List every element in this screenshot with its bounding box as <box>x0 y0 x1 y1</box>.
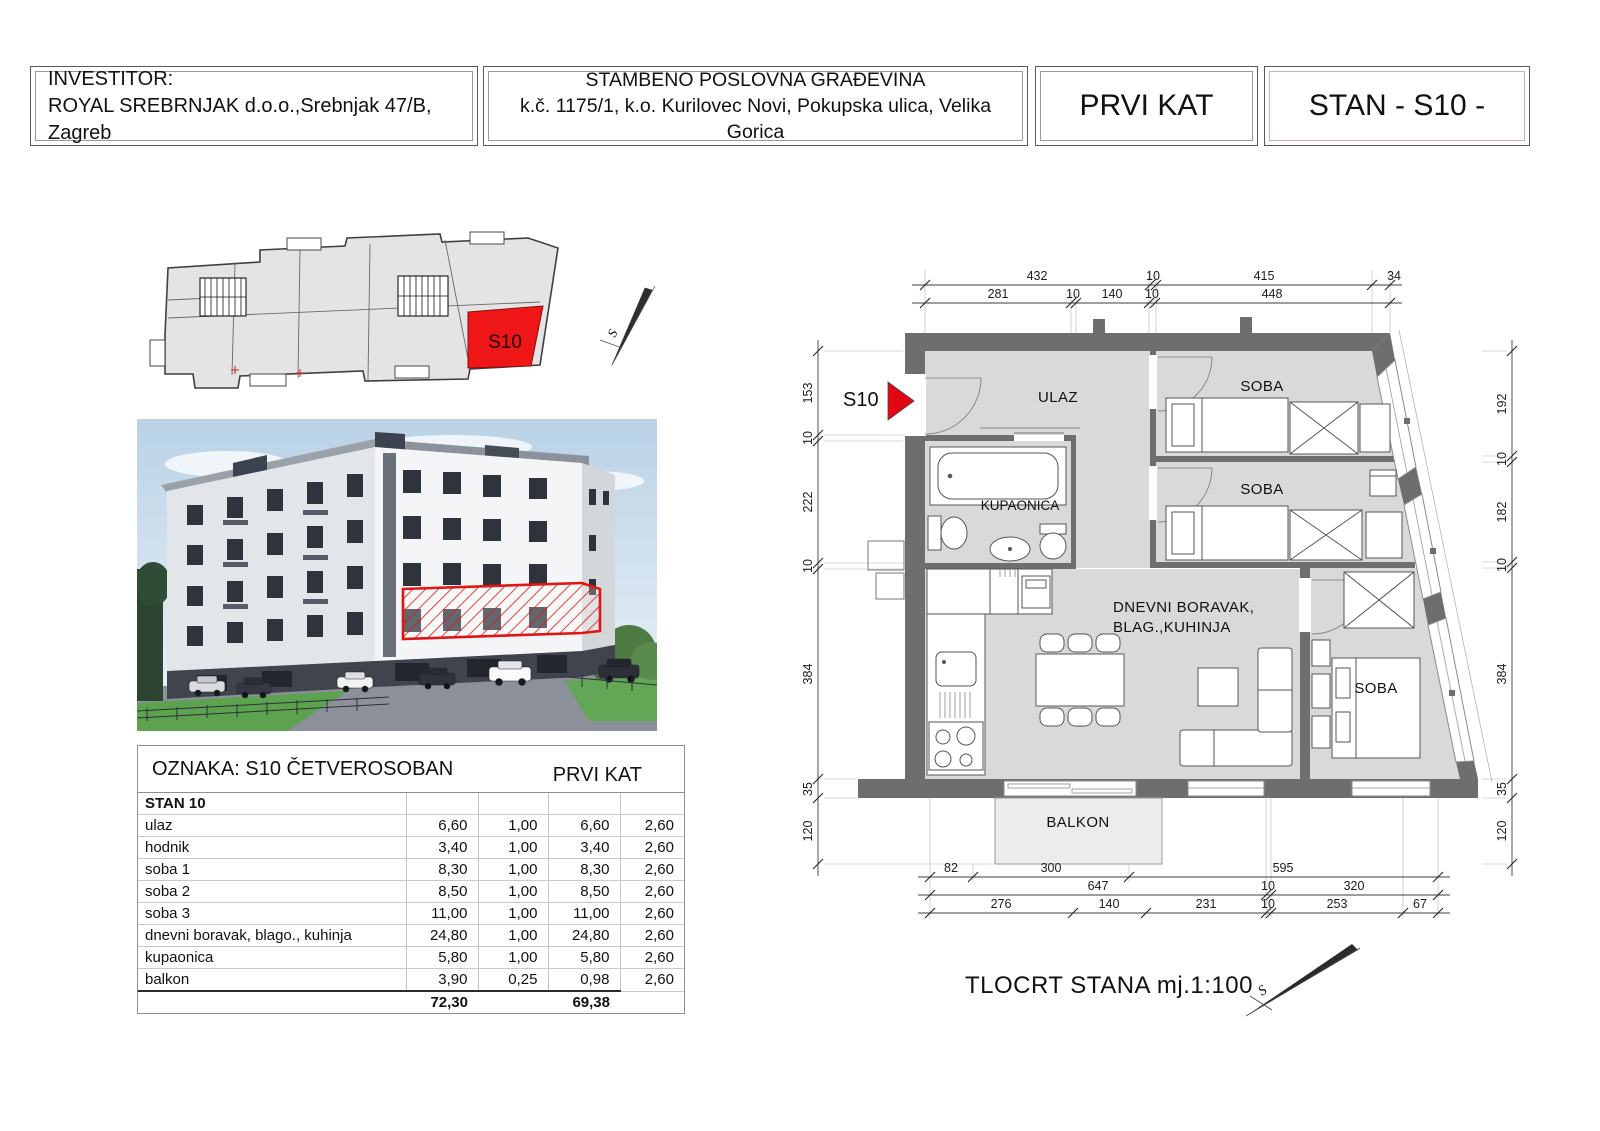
table-row: balkon3,900,250,982,60 <box>138 969 684 992</box>
table-row: soba 28,501,008,502,60 <box>138 881 684 903</box>
table-row: dnevni boravak, blago., kuhinja24,801,00… <box>138 925 684 947</box>
svg-text:10: 10 <box>1066 287 1080 301</box>
toilet2-icon <box>1040 524 1066 559</box>
sink-icon <box>990 537 1030 561</box>
svg-text:231: 231 <box>1196 897 1217 911</box>
plan-sheet: INVESTITOR: ROYAL SREBRNJAK d.o.o.,Srebn… <box>0 0 1600 1131</box>
wardrobe-icon-soba-bottom <box>1344 572 1414 628</box>
svg-text:10: 10 <box>1261 879 1275 893</box>
project-title: STAMBENO POSLOVNA GRAĐEVINA <box>489 67 1022 93</box>
svg-text:10: 10 <box>801 431 815 445</box>
coffee-table-icon <box>1198 668 1238 706</box>
floor-box: PRVI KAT <box>1035 66 1258 146</box>
room-label-soba-top: SOBA <box>1240 378 1283 395</box>
room-label-living-2: BLAG.,KUHINJA <box>1113 619 1231 636</box>
svg-text:10: 10 <box>801 559 815 573</box>
table-row-group: STAN 10 <box>138 793 684 815</box>
svg-text:384: 384 <box>801 664 815 685</box>
svg-text:140: 140 <box>1102 287 1123 301</box>
svg-text:82: 82 <box>944 861 958 875</box>
highlighted-unit-overlay <box>403 583 600 639</box>
north-label: S <box>604 327 621 340</box>
floor-plan: ULAZ SOBA SOBA KUPAONICA DNEVNI BORAVAK,… <box>780 240 1570 1040</box>
bed-icon-soba-top <box>1166 398 1288 452</box>
svg-text:67: 67 <box>1413 897 1427 911</box>
svg-text:595: 595 <box>1273 861 1294 875</box>
table-row: soba 311,001,0011,002,60 <box>138 903 684 925</box>
bathtub-icon <box>930 447 1066 505</box>
svg-text:192: 192 <box>1495 394 1509 415</box>
investor-label: INVESTITOR: <box>48 66 472 93</box>
north-label: S <box>1256 983 1270 999</box>
project-location: k.č. 1175/1, k.o. Kurilovec Novi, Pokups… <box>489 93 1022 145</box>
building <box>161 432 615 699</box>
entrance-marker-label: S10 <box>843 389 879 411</box>
room-label-ulaz: ULAZ <box>1038 389 1078 406</box>
toilet-icon <box>928 516 967 550</box>
unit-label: STAN - S10 - <box>1270 89 1524 123</box>
svg-text:10: 10 <box>1495 452 1509 466</box>
area-table-oznaka: OZNAKA: S10 ČETVEROSOBAN <box>138 758 453 781</box>
area-table-title: OZNAKA: S10 ČETVEROSOBAN PRVI KAT <box>138 746 684 793</box>
room-label-living-1: DNEVNI BORAVAK, <box>1113 599 1254 616</box>
key-plan-unit-s10: S10 <box>468 306 543 368</box>
table-row: soba 18,301,008,302,60 <box>138 859 684 881</box>
entrance-marker: S10 <box>843 382 914 420</box>
dim-right-column: 192 10 182 10 384 35 120 <box>1495 340 1517 876</box>
scale-note: TLOCRT STANA mj.1:100 <box>965 972 1253 1000</box>
svg-text:222: 222 <box>801 492 815 513</box>
area-table-floor: PRVI KAT <box>553 764 642 792</box>
north-arrow-icon: S <box>1246 944 1360 1016</box>
svg-text:120: 120 <box>801 821 815 842</box>
svg-text:320: 320 <box>1344 879 1365 893</box>
svg-text:140: 140 <box>1099 897 1120 911</box>
wardrobe-icon-soba-top <box>1290 402 1390 454</box>
balcony <box>995 798 1162 864</box>
svg-text:182: 182 <box>1495 502 1509 523</box>
unit-box: STAN - S10 - <box>1264 66 1530 146</box>
building-render <box>137 419 657 731</box>
shafts <box>868 541 904 599</box>
svg-text:647: 647 <box>1088 879 1109 893</box>
svg-text:448: 448 <box>1262 287 1283 301</box>
stair-strip <box>383 453 396 657</box>
svg-text:276: 276 <box>991 897 1012 911</box>
key-plan-unit-label: S10 <box>488 332 522 353</box>
bed-icon-soba-bottom <box>1312 640 1420 758</box>
stove-icon <box>929 722 983 770</box>
bed-icon-soba-mid <box>1166 506 1288 560</box>
key-plan: S10 S <box>140 215 700 405</box>
svg-text:35: 35 <box>1495 782 1509 796</box>
svg-text:300: 300 <box>1041 861 1062 875</box>
svg-text:153: 153 <box>801 383 815 404</box>
table-row-total: 72,3069,38 <box>138 991 684 1013</box>
investor-box: INVESTITOR: ROYAL SREBRNJAK d.o.o.,Srebn… <box>30 66 478 146</box>
investor-name: ROYAL SREBRNJAK d.o.o.,Srebnjak 47/B, Za… <box>48 93 472 147</box>
dim-top-row-2: 281 10 140 10 448 <box>912 287 1402 308</box>
svg-text:10: 10 <box>1145 287 1159 301</box>
svg-text:432: 432 <box>1027 269 1048 283</box>
table-row: kupaonica5,801,005,802,60 <box>138 947 684 969</box>
svg-text:415: 415 <box>1254 269 1275 283</box>
floor-label: PRVI KAT <box>1041 89 1252 123</box>
svg-text:120: 120 <box>1495 821 1509 842</box>
svg-text:281: 281 <box>988 287 1009 301</box>
room-label-soba-bottom: SOBA <box>1354 680 1397 697</box>
room-label-kupaonica: KUPAONICA <box>981 498 1060 513</box>
svg-text:35: 35 <box>801 782 815 796</box>
table-row: hodnik3,401,003,402,60 <box>138 837 684 859</box>
dim-bottom-row-3: 276 140 231 10 253 67 <box>918 897 1450 918</box>
room-label-soba-mid: SOBA <box>1240 481 1283 498</box>
svg-text:384: 384 <box>1495 664 1509 685</box>
north-arrow-icon: S <box>600 286 655 365</box>
svg-text:10: 10 <box>1146 269 1160 283</box>
table-row: ulaz6,601,006,602,60 <box>138 815 684 837</box>
dining-table-icon <box>1036 634 1124 726</box>
area-table: OZNAKA: S10 ČETVEROSOBAN PRVI KAT STAN 1… <box>137 745 685 1014</box>
svg-text:10: 10 <box>1495 558 1509 572</box>
svg-text:10: 10 <box>1261 897 1275 911</box>
bottom-windows <box>1004 781 1430 796</box>
svg-text:34: 34 <box>1387 269 1401 283</box>
room-label-balkon: BALKON <box>1046 814 1109 831</box>
dim-left-column: 153 10 222 10 384 35 120 <box>801 340 823 876</box>
svg-text:253: 253 <box>1327 897 1348 911</box>
project-box: STAMBENO POSLOVNA GRAĐEVINA k.č. 1175/1,… <box>483 66 1028 146</box>
